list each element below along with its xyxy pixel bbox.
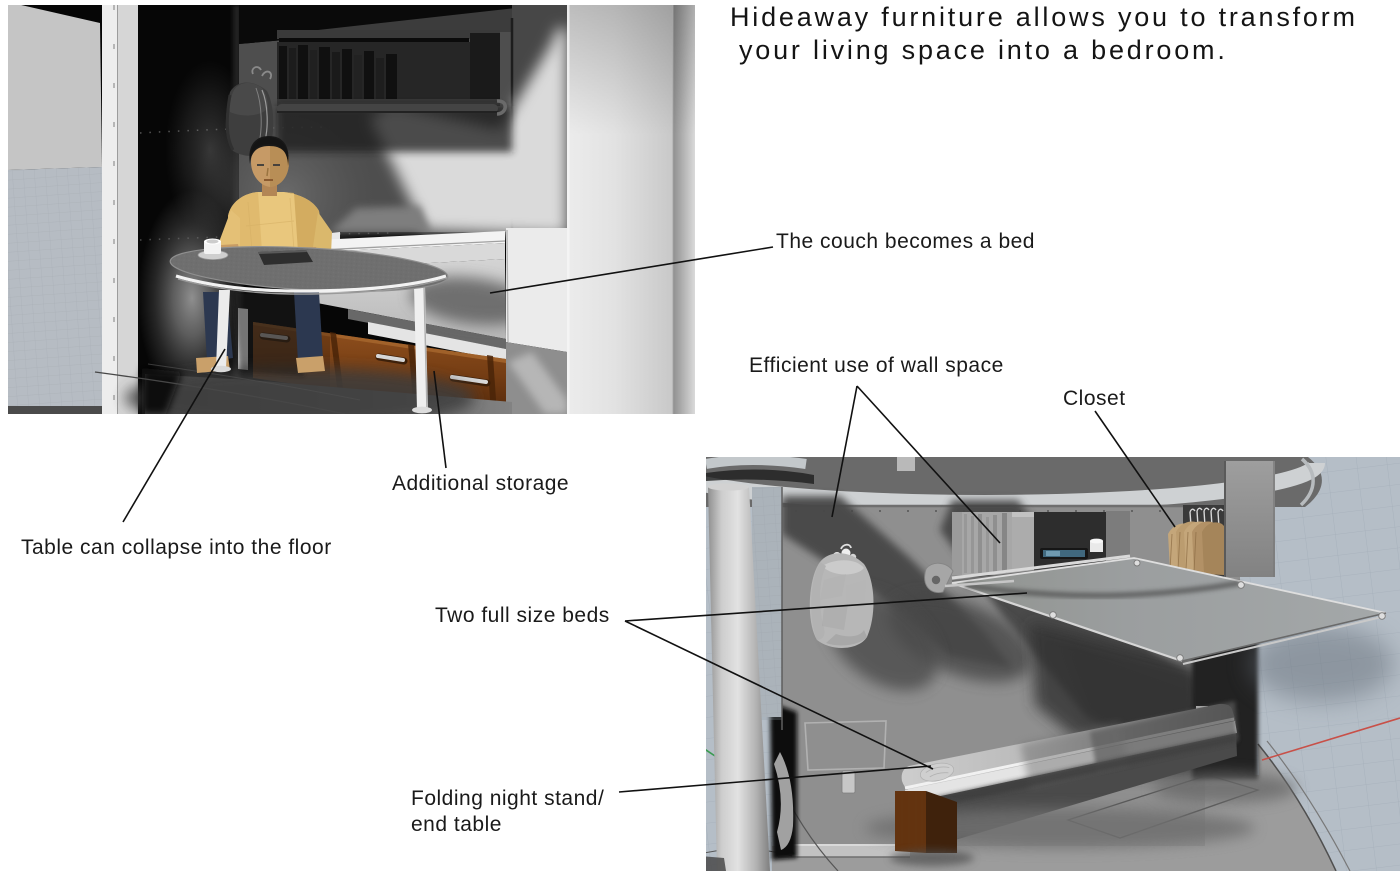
svg-text:your living space into a bedro: your living space into a bedroom.: [739, 35, 1228, 65]
svg-text:Two full size beds: Two full size beds: [435, 604, 610, 627]
svg-text:Table can collapse into the fl: Table can collapse into the floor: [21, 536, 332, 559]
svg-text:Hideaway furniture allows you: Hideaway furniture allows you to transfo…: [730, 2, 1358, 32]
svg-text:Efficient use of wall space: Efficient use of wall space: [749, 354, 1004, 377]
svg-text:Closet: Closet: [1063, 387, 1126, 410]
svg-text:The couch becomes a bed: The couch becomes a bed: [776, 230, 1035, 253]
svg-text:end table: end table: [411, 813, 502, 836]
svg-text:Additional storage: Additional storage: [392, 472, 569, 495]
svg-text:Folding night stand/: Folding night stand/: [411, 787, 604, 810]
